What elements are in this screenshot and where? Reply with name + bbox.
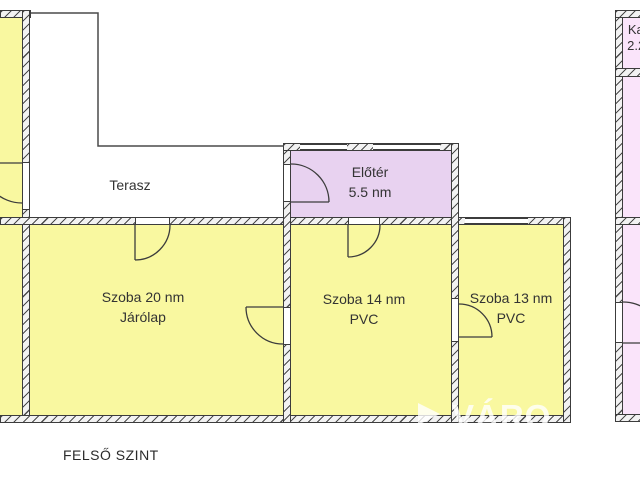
door-opening <box>284 307 290 345</box>
door-opening <box>23 162 29 210</box>
room-name: Kamra <box>627 22 640 38</box>
room-area: 2.2 nm <box>627 38 640 54</box>
szoba13-label: Szoba 13 nm PVC <box>470 288 553 328</box>
door-opening <box>348 218 380 224</box>
wall-segment <box>615 68 640 77</box>
door-opening <box>616 302 622 343</box>
room-topleft-partial <box>0 17 23 217</box>
eloter-label: Előtér 5.5 nm <box>349 162 392 202</box>
wall-segment <box>615 10 640 18</box>
room-left-strip-partial <box>0 225 23 415</box>
window-symbol <box>465 218 528 224</box>
kamra-label: Kamra 2.2 nm <box>627 22 640 54</box>
szoba14-label: Szoba 14 nm PVC <box>323 289 406 329</box>
window-symbol <box>373 144 440 150</box>
terasz-label: Terasz <box>109 175 150 195</box>
door-opening <box>135 218 170 224</box>
terrace-outline <box>31 13 284 146</box>
room-right-middle-partial <box>623 77 640 217</box>
wall-segment <box>451 143 459 423</box>
room-name: Szoba 13 nm <box>470 288 553 308</box>
room-name: Terasz <box>109 177 150 193</box>
play-triangle-icon <box>418 403 440 425</box>
room-area: 5.5 nm <box>349 182 392 202</box>
level-title: FELSŐ SZINT <box>63 447 159 463</box>
wall-segment <box>615 414 640 422</box>
room-name: Szoba 14 nm <box>323 289 406 309</box>
room-floor: PVC <box>470 308 553 328</box>
watermark-text: VÁRO <box>452 398 551 436</box>
door-opening <box>452 298 458 342</box>
szoba20-label: Szoba 20 nm Járólap <box>102 287 185 327</box>
room-floor: PVC <box>323 309 406 329</box>
wall-segment <box>563 217 571 423</box>
room-name: Szoba 20 nm <box>102 287 185 307</box>
wall-segment <box>615 217 640 225</box>
floorplan-canvas: Terasz Előtér 5.5 nm Szoba 20 nm Járólap… <box>0 0 640 480</box>
room-name: Előtér <box>349 162 392 182</box>
door-opening <box>284 164 290 202</box>
room-floor: Járólap <box>102 307 185 327</box>
window-symbol <box>300 144 347 150</box>
room-right-lower-partial <box>623 225 640 414</box>
